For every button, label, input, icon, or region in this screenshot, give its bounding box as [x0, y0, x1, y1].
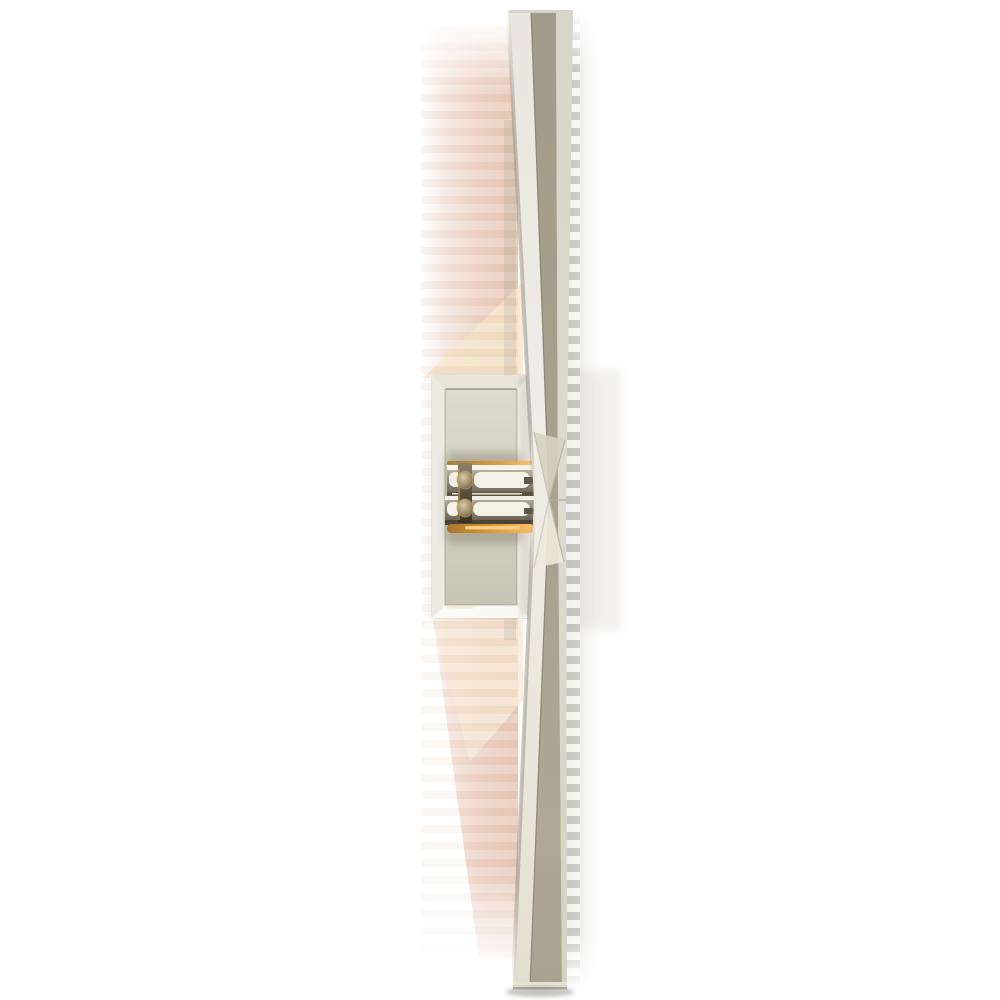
blade-top-face	[509, 10, 572, 13]
floor-shadow	[506, 987, 574, 997]
backplate-bevel-top	[432, 375, 530, 389]
arm-ball-joint-upper	[457, 471, 473, 489]
product-image	[0, 0, 1000, 1000]
sconce-illustration	[0, 0, 1000, 1000]
backplate-bevel-left	[432, 375, 445, 618]
backplate-brass-glint	[448, 607, 474, 608]
arm-ball-joint-lower	[457, 499, 473, 517]
sconce-arms	[445, 461, 537, 533]
backplate-bevel-bottom	[432, 605, 530, 618]
arm-glow-core	[465, 526, 520, 530]
